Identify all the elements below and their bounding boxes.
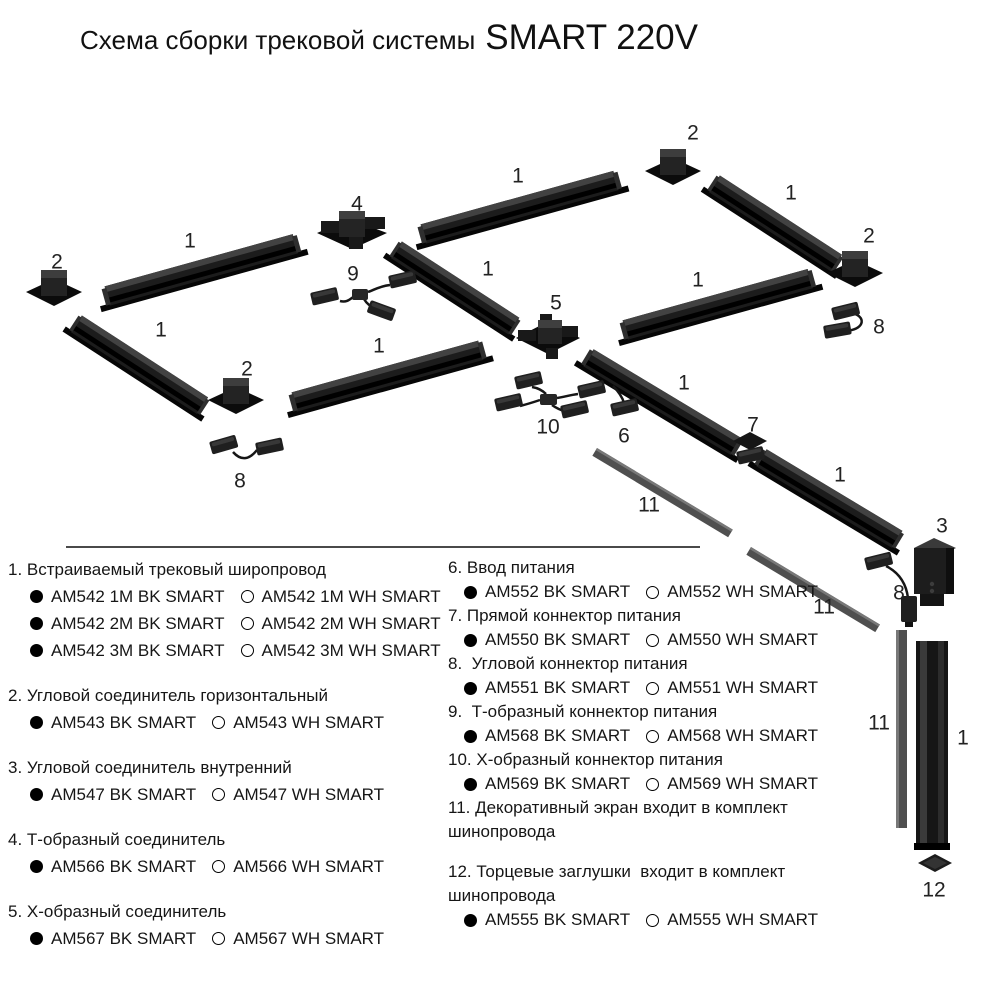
product-code-bk: AM542 3M BK SMART xyxy=(51,637,225,664)
product-code-wh: AM550 WH SMART xyxy=(667,628,818,652)
corner-power-connector xyxy=(209,435,284,459)
legend-item-12: 12. Торцевые заглушки входит в комплект … xyxy=(448,860,796,932)
decorative-screen xyxy=(896,630,907,828)
product-code-bk: AM567 BK SMART xyxy=(51,925,196,952)
track-segment xyxy=(63,311,215,421)
white-variant-icon xyxy=(212,932,225,945)
legend-item-title: 4. Т-образный соединитель xyxy=(8,826,440,853)
callout-label: 8 xyxy=(234,471,246,492)
callout-label: 11 xyxy=(868,713,890,734)
callout-label: 12 xyxy=(922,880,945,901)
white-variant-icon xyxy=(646,682,659,695)
callout-label: 6 xyxy=(618,426,630,447)
product-code-bk: AM550 BK SMART xyxy=(485,628,630,652)
track-segment xyxy=(574,345,749,463)
black-variant-icon xyxy=(464,730,477,743)
product-code-bk: AM566 BK SMART xyxy=(51,853,196,880)
legend-item-title: 8. Угловой коннектор питания xyxy=(448,652,796,676)
callout-label: 1 xyxy=(373,336,385,357)
corner-connector xyxy=(208,378,264,414)
t-power-connector xyxy=(310,270,417,322)
white-variant-icon xyxy=(646,586,659,599)
white-variant-icon xyxy=(646,634,659,647)
corner-power-connector xyxy=(864,551,917,627)
legend-variant-row: AM542 2M BK SMART AM542 2M WH SMART xyxy=(8,610,440,637)
legend-item-3: 3. Угловой соединитель внутренний AM547 … xyxy=(8,754,440,808)
callout-label: 1 xyxy=(184,231,196,252)
black-variant-icon xyxy=(30,788,43,801)
product-code-wh: AM542 3M WH SMART xyxy=(262,637,441,664)
track-segment xyxy=(383,238,525,342)
legend-item-title: 5. Х-образный соединитель xyxy=(8,898,440,925)
legend-item-2: 2. Угловой соединитель горизонтальный AM… xyxy=(8,682,440,736)
legend-variant-row: AM552 BK SMART AM552 WH SMART xyxy=(448,580,796,604)
legend-variant-row: AM547 BK SMART AM547 WH SMART xyxy=(8,781,440,808)
legend-item-10: 10. Х-образный коннектор питания AM569 B… xyxy=(448,748,796,796)
corner-connector xyxy=(645,149,701,185)
legend-item-9: 9. Т-образный коннектор питания AM568 BK… xyxy=(448,700,796,748)
callout-label: 1 xyxy=(692,270,704,291)
product-code-wh: AM542 2M WH SMART xyxy=(262,610,441,637)
decorative-screen xyxy=(592,448,732,537)
white-variant-icon xyxy=(241,590,254,603)
black-variant-icon xyxy=(30,932,43,945)
legend-left-column: 1. Встраиваемый трековый широпровод AM54… xyxy=(8,556,440,970)
product-code-bk: AM547 BK SMART xyxy=(51,781,196,808)
callout-label: 1 xyxy=(785,183,797,204)
product-code-bk: AM552 BK SMART xyxy=(485,580,630,604)
callout-label: 2 xyxy=(51,252,63,273)
callout-label: 7 xyxy=(747,415,759,436)
legend-variant-row: AM555 BK SMART AM555 WH SMART xyxy=(448,908,796,932)
white-variant-icon xyxy=(646,778,659,791)
legend-item-title: 10. Х-образный коннектор питания xyxy=(448,748,796,772)
legend-variant-row: AM568 BK SMART AM568 WH SMART xyxy=(448,724,796,748)
legend-item-title: 2. Угловой соединитель горизонтальный xyxy=(8,682,440,709)
legend-item-title: 1. Встраиваемый трековый широпровод xyxy=(8,556,440,583)
callout-label: 4 xyxy=(351,194,363,215)
track-segment xyxy=(701,171,848,278)
product-code-bk: AM551 BK SMART xyxy=(485,676,630,700)
product-code-wh: AM552 WH SMART xyxy=(667,580,818,604)
callout-label: 1 xyxy=(678,373,690,394)
legend-item-5: 5. Х-образный соединитель AM567 BK SMART… xyxy=(8,898,440,952)
legend-variant-row: AM542 3M BK SMART AM542 3M WH SMART xyxy=(8,637,440,664)
end-cap xyxy=(918,854,952,872)
x-power-connector xyxy=(494,371,606,419)
product-code-wh: AM555 WH SMART xyxy=(667,908,818,932)
product-code-bk: AM568 BK SMART xyxy=(485,724,630,748)
white-variant-icon xyxy=(212,788,225,801)
callout-label: 1 xyxy=(834,465,846,486)
track-segment xyxy=(95,232,308,313)
black-variant-icon xyxy=(464,682,477,695)
product-code-wh: AM542 1M WH SMART xyxy=(262,583,441,610)
black-variant-icon xyxy=(464,586,477,599)
t-connector xyxy=(317,211,387,249)
legend-item-title: 9. Т-образный коннектор питания xyxy=(448,700,796,724)
callout-label: 8 xyxy=(873,317,885,338)
black-variant-icon xyxy=(464,778,477,791)
corner-power-connector xyxy=(823,301,862,338)
product-code-bk: AM542 2M BK SMART xyxy=(51,610,225,637)
black-variant-icon xyxy=(30,644,43,657)
black-variant-icon xyxy=(30,617,43,630)
white-variant-icon xyxy=(212,716,225,729)
black-variant-icon xyxy=(30,716,43,729)
legend-item-7: 7. Прямой коннектор питания AM550 BK SMA… xyxy=(448,604,796,652)
product-code-wh: AM567 WH SMART xyxy=(233,925,384,952)
product-code-wh: AM566 WH SMART xyxy=(233,853,384,880)
legend-item-title: 12. Торцевые заглушки входит в комплект … xyxy=(448,860,796,908)
callout-label: 2 xyxy=(687,123,699,144)
callout-label: 1 xyxy=(155,320,167,341)
legend-variant-row: AM550 BK SMART AM550 WH SMART xyxy=(448,628,796,652)
white-variant-icon xyxy=(212,860,225,873)
legend-variant-row: AM566 BK SMART AM566 WH SMART xyxy=(8,853,440,880)
callout-label: 2 xyxy=(863,226,875,247)
legend-item-11: 11. Декоративный экран входит в комплект… xyxy=(448,796,796,844)
legend-item-title: 3. Угловой соединитель внутренний xyxy=(8,754,440,781)
product-code-wh: AM543 WH SMART xyxy=(233,709,384,736)
legend-item-title: 11. Декоративный экран входит в комплект… xyxy=(448,796,796,844)
callout-label: 8 xyxy=(893,583,905,604)
legend-right-column: 6. Ввод питания AM552 BK SMART AM552 WH … xyxy=(448,556,796,932)
callout-label: 3 xyxy=(936,516,948,537)
track-segment xyxy=(613,266,823,346)
white-variant-icon xyxy=(241,644,254,657)
corner-connector xyxy=(26,270,82,306)
assembly-scheme-page: Схема сборки трековой системы SMART 220V xyxy=(0,0,1000,1000)
product-code-bk: AM543 BK SMART xyxy=(51,709,196,736)
product-code-bk: AM555 BK SMART xyxy=(485,908,630,932)
legend-divider xyxy=(66,546,700,548)
legend-item-title: 7. Прямой коннектор питания xyxy=(448,604,796,628)
product-code-wh: AM547 WH SMART xyxy=(233,781,384,808)
legend-variant-row: AM551 BK SMART AM551 WH SMART xyxy=(448,676,796,700)
callout-label: 1 xyxy=(482,259,494,280)
black-variant-icon xyxy=(464,634,477,647)
legend-item-6: 6. Ввод питания AM552 BK SMART AM552 WH … xyxy=(448,556,796,604)
legend-item-title: 6. Ввод питания xyxy=(448,556,796,580)
x-connector xyxy=(516,314,580,359)
internal-corner-connector xyxy=(914,538,956,606)
black-variant-icon xyxy=(464,914,477,927)
product-code-bk: AM569 BK SMART xyxy=(485,772,630,796)
black-variant-icon xyxy=(30,590,43,603)
legend-variant-row: AM542 1M BK SMART AM542 1M WH SMART xyxy=(8,583,440,610)
product-code-wh: AM551 WH SMART xyxy=(667,676,818,700)
legend-item-8: 8. Угловой коннектор питания AM551 BK SM… xyxy=(448,652,796,700)
track-segment-vertical xyxy=(914,641,950,850)
track-segment xyxy=(747,445,909,555)
legend-variant-row: AM543 BK SMART AM543 WH SMART xyxy=(8,709,440,736)
callout-label: 5 xyxy=(550,293,562,314)
product-code-wh: AM568 WH SMART xyxy=(667,724,818,748)
callout-label: 1 xyxy=(957,728,969,749)
callout-label: 9 xyxy=(347,264,359,285)
product-code-bk: AM542 1M BK SMART xyxy=(51,583,225,610)
legend-item-1: 1. Встраиваемый трековый широпровод AM54… xyxy=(8,556,440,664)
legend-item-4: 4. Т-образный соединитель AM566 BK SMART… xyxy=(8,826,440,880)
callout-label: 10 xyxy=(536,417,559,438)
callout-label: 11 xyxy=(638,495,660,516)
legend-variant-row: AM567 BK SMART AM567 WH SMART xyxy=(8,925,440,952)
track-segment xyxy=(282,338,494,418)
white-variant-icon xyxy=(241,617,254,630)
white-variant-icon xyxy=(646,730,659,743)
white-variant-icon xyxy=(646,914,659,927)
black-variant-icon xyxy=(30,860,43,873)
product-code-wh: AM569 WH SMART xyxy=(667,772,818,796)
callout-label: 1 xyxy=(512,166,524,187)
callout-label: 2 xyxy=(241,359,253,380)
legend-variant-row: AM569 BK SMART AM569 WH SMART xyxy=(448,772,796,796)
